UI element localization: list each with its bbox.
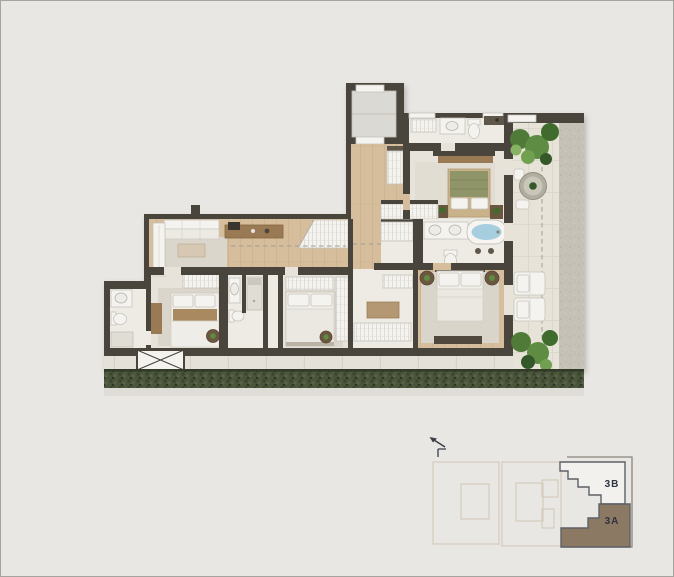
wardrobe [354, 323, 411, 341]
vanity-sink [440, 118, 465, 134]
vanity-sink [229, 278, 240, 303]
wardrobe [336, 277, 348, 341]
bed-suite-2 [448, 169, 490, 217]
console-shelf [438, 156, 493, 163]
nightstand [207, 330, 220, 343]
shower [111, 332, 133, 347]
lounge-chair [514, 298, 545, 321]
floor-plan [104, 83, 584, 396]
unit-3b-label: 3B [605, 479, 620, 490]
walk-in-closet [353, 269, 413, 348]
toilet [229, 310, 244, 322]
service-shaft [137, 350, 184, 370]
keyplan-unit-3a [561, 504, 630, 547]
elevator [352, 85, 396, 144]
closet [286, 277, 334, 290]
elevator-door-top [356, 85, 384, 92]
stool [488, 248, 494, 254]
hedge [104, 369, 584, 396]
window-slab [409, 113, 435, 118]
shower [247, 277, 262, 310]
dresser [151, 303, 162, 334]
terrace-concrete-band [559, 123, 584, 369]
master-bathroom [423, 219, 506, 269]
elevator-door-bottom [356, 137, 384, 144]
keyplan-neighbor-units [433, 462, 561, 546]
bedroom-2 [283, 275, 348, 348]
unit-3a-label: 3A [605, 516, 620, 527]
bathroom-2 [228, 275, 278, 348]
lounge-chair [514, 272, 545, 295]
nightstand [437, 205, 448, 218]
closet [183, 274, 219, 288]
apartment-floor-plan: 3B 3A [1, 1, 674, 577]
laundry-closet [411, 119, 436, 132]
master-bedroom [418, 268, 504, 348]
nightstand [420, 271, 434, 285]
nightstand [485, 271, 499, 285]
terrace-gate [508, 115, 536, 122]
coffee-table [178, 244, 205, 257]
wardrobe [381, 222, 418, 241]
nightstand [320, 331, 332, 343]
bench [367, 302, 399, 318]
wall-notch [191, 205, 200, 215]
bathtub [467, 220, 506, 244]
double-vanity [424, 222, 468, 239]
hall-closet [387, 146, 403, 184]
stool [475, 248, 481, 254]
master-bed [437, 271, 483, 321]
dark-counter [484, 116, 504, 125]
toilet [468, 119, 480, 139]
floor-plan-page: 3B 3A [0, 0, 674, 577]
bedroom-1 [151, 274, 220, 348]
north-arrow-icon [430, 437, 447, 457]
key-plan: 3B 3A [430, 437, 633, 547]
wardrobe [383, 275, 413, 288]
nightstand [490, 205, 503, 219]
foot-console [434, 336, 482, 344]
bathroom-1 [110, 289, 146, 348]
vanity-sink [111, 290, 132, 307]
